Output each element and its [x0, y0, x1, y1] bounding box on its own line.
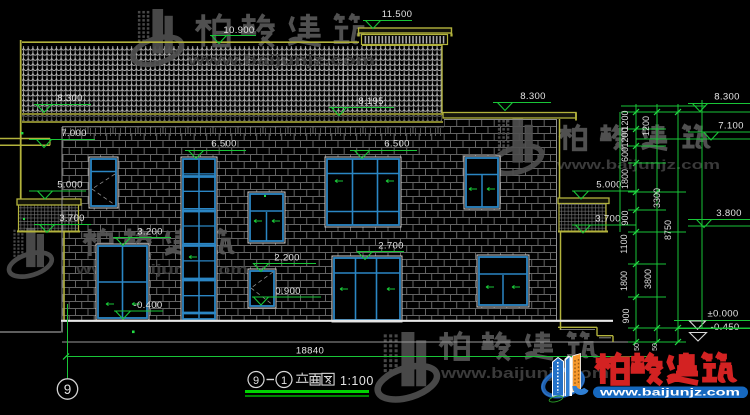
svg-text:5.000: 5.000	[57, 179, 83, 190]
svg-text:3.200: 3.200	[137, 226, 163, 237]
svg-text:7.000: 7.000	[61, 128, 87, 139]
svg-text:www.baijunjz.com: www.baijunjz.com	[598, 387, 740, 398]
svg-text:www.baijunjz.com: www.baijunjz.com	[555, 158, 720, 172]
svg-text:8.300: 8.300	[520, 91, 546, 102]
svg-text:1:100: 1:100	[340, 374, 374, 388]
svg-text:8.300: 8.300	[714, 91, 740, 102]
svg-text:10.900: 10.900	[223, 25, 254, 36]
svg-text:7.100: 7.100	[718, 120, 744, 131]
svg-text:8750: 8750	[663, 220, 673, 240]
svg-text:1800: 1800	[619, 271, 629, 291]
svg-text:50: 50	[652, 343, 659, 351]
svg-text:0.900: 0.900	[275, 286, 301, 297]
svg-text:3.700: 3.700	[59, 213, 85, 224]
svg-text:8.300: 8.300	[57, 93, 83, 104]
svg-text:1: 1	[281, 375, 287, 387]
svg-text:1800: 1800	[620, 169, 630, 189]
svg-text:1100: 1100	[619, 234, 629, 253]
svg-text:2.200: 2.200	[274, 252, 300, 263]
svg-text:6.500: 6.500	[384, 138, 410, 149]
svg-text:3300: 3300	[652, 188, 662, 208]
svg-text:2.700: 2.700	[378, 240, 404, 251]
svg-text:3.800: 3.800	[716, 208, 742, 219]
svg-text:-0.450: -0.450	[710, 322, 739, 333]
svg-text:www.baijunjz.com: www.baijunjz.com	[187, 52, 375, 69]
svg-text:1200: 1200	[620, 127, 630, 147]
svg-text:8.195: 8.195	[358, 96, 384, 107]
svg-text:18840: 18840	[296, 346, 324, 357]
svg-text:-0.400: -0.400	[133, 300, 162, 311]
svg-text:900: 900	[621, 308, 631, 323]
svg-text:±0.000: ±0.000	[707, 308, 738, 319]
svg-text:5.000: 5.000	[596, 179, 622, 190]
svg-text:9: 9	[253, 375, 259, 387]
svg-text:50: 50	[634, 343, 641, 351]
svg-text:3.700: 3.700	[595, 213, 621, 224]
svg-text:3800: 3800	[643, 269, 653, 289]
svg-text:11.500: 11.500	[382, 9, 412, 20]
svg-text:600: 600	[620, 147, 630, 162]
svg-text:6.500: 6.500	[211, 138, 237, 149]
svg-text:900: 900	[620, 210, 630, 225]
svg-text:1200: 1200	[641, 116, 651, 136]
svg-text:9: 9	[64, 382, 72, 397]
